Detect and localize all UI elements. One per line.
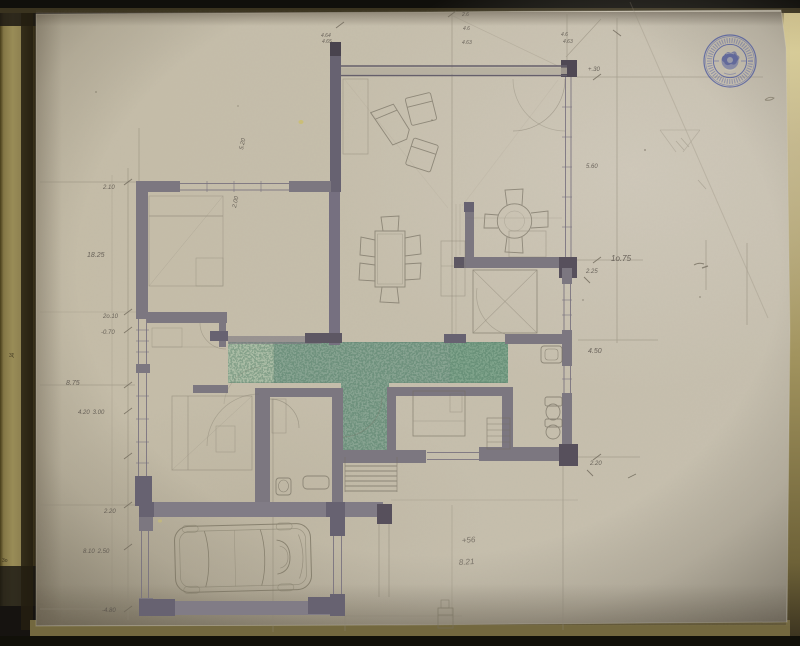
svg-text:3o: 3o [2, 558, 8, 564]
svg-text:8.10 2.50: 8.10 2.50 [83, 549, 110, 555]
svg-text:2.25: 2.25 [585, 269, 598, 275]
svg-text:8.21: 8.21 [459, 557, 475, 567]
svg-text:5.60: 5.60 [586, 164, 598, 170]
svg-text:1o.75: 1o.75 [611, 254, 632, 263]
svg-text:-0.70: -0.70 [101, 330, 115, 336]
svg-text:+.30: +.30 [588, 67, 601, 73]
svg-text:18.25: 18.25 [87, 252, 105, 259]
svg-text:4.6: 4.6 [561, 32, 568, 38]
svg-text:2.20: 2.20 [589, 461, 602, 467]
svg-text:3ξ: 3ξ [9, 353, 15, 359]
svg-text:8.75: 8.75 [66, 380, 80, 387]
svg-text:4.63: 4.63 [462, 40, 472, 46]
svg-text:4.63: 4.63 [563, 39, 573, 45]
svg-text:2.20: 2.20 [103, 509, 116, 515]
svg-text:2.10: 2.10 [102, 185, 115, 191]
svg-text:2o.10: 2o.10 [102, 314, 119, 320]
svg-text:4.6: 4.6 [463, 26, 470, 32]
svg-text:+56: +56 [462, 535, 477, 545]
svg-text:4.20 3.00: 4.20 3.00 [78, 410, 105, 416]
svg-text:4.65: 4.65 [322, 39, 332, 45]
svg-text:2.6: 2.6 [461, 12, 469, 18]
svg-text:4.50: 4.50 [588, 348, 602, 355]
svg-text:-4.80: -4.80 [102, 608, 116, 614]
